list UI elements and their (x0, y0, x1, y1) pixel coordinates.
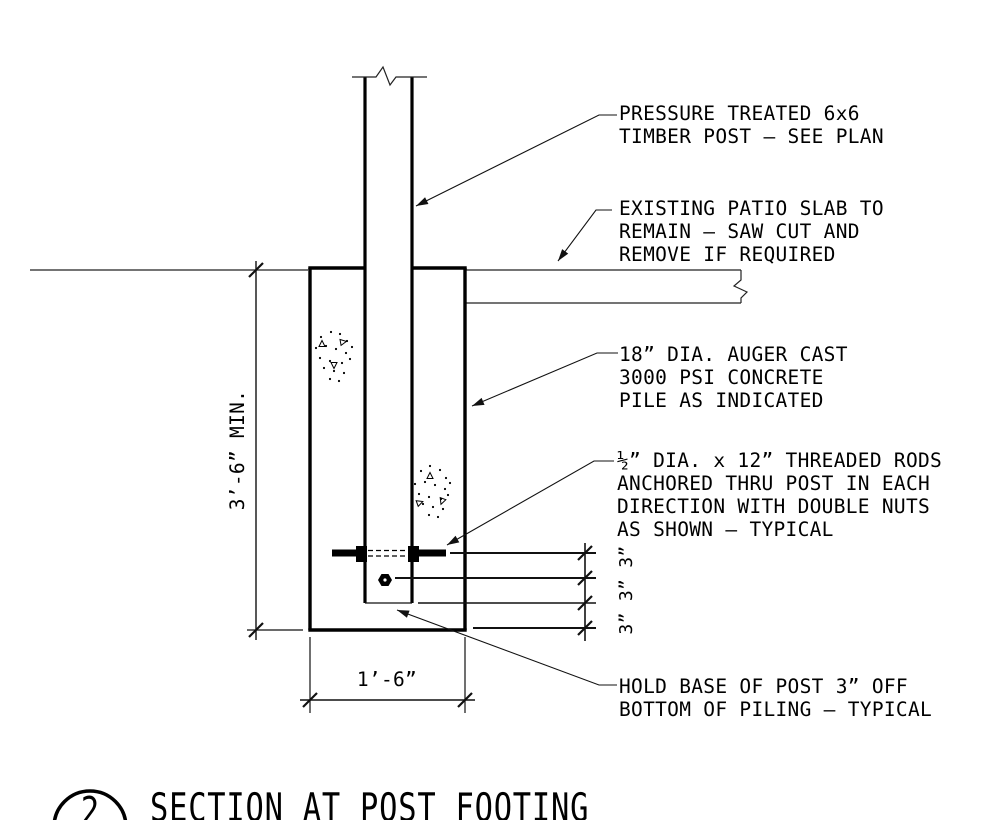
leader-timber-post (416, 115, 617, 206)
leader-threaded-rods (447, 461, 614, 545)
dim-rod-graphic (395, 543, 596, 641)
section-detail-sheet: PRESSURE TREATED 6x6 TIMBER POST — SEE P… (0, 0, 1000, 820)
dim-pile-depth: 3’-6” MIN. (226, 350, 248, 550)
note-post-base: HOLD BASE OF POST 3” OFF BOTTOM OF PILIN… (619, 675, 932, 721)
threaded-rod-graphic (332, 546, 446, 586)
detail-number: 2 (73, 789, 107, 820)
slab-break-symbol (734, 270, 747, 303)
leader-patio-slab (558, 210, 612, 261)
detail-title: SECTION AT POST FOOTING (150, 786, 589, 820)
dim-left-graphic (247, 261, 303, 640)
post-break-symbol (352, 67, 427, 85)
left-nut (356, 546, 367, 562)
right-nut (408, 546, 419, 562)
patio-slab-graphic (466, 270, 747, 303)
note-threaded-rods: ½” DIA. x 12” THREADED RODS ANCHORED THR… (617, 449, 942, 541)
leader-concrete-pile (472, 353, 618, 406)
post-graphic (352, 67, 427, 603)
perpendicular-rod-end (378, 574, 392, 586)
dim-pile-width: 1’-6” (307, 668, 467, 691)
note-concrete-pile: 18” DIA. AUGER CAST 3000 PSI CONCRETE PI… (619, 343, 848, 412)
note-patio-slab: EXISTING PATIO SLAB TO REMAIN — SAW CUT … (619, 197, 884, 266)
note-timber-post: PRESSURE TREATED 6x6 TIMBER POST — SEE P… (619, 102, 884, 148)
dim-rod-spacing: 3” 3” 3” (616, 528, 638, 652)
concrete-stipple (315, 331, 451, 518)
